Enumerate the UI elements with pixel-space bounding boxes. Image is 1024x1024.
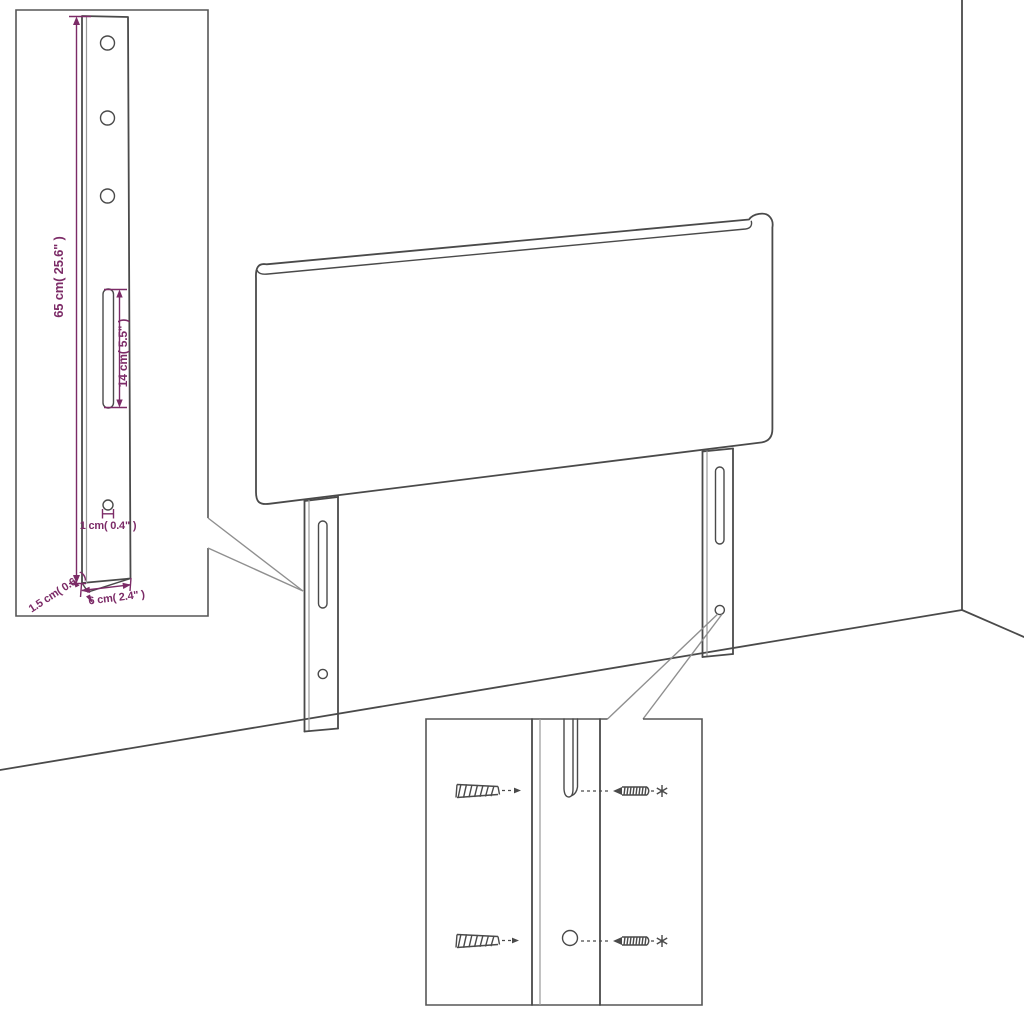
hardware-row-bottom bbox=[456, 934, 667, 948]
room-corner-lines bbox=[0, 0, 1024, 770]
dim-tick-6-right bbox=[130, 578, 131, 591]
floor-line-right bbox=[962, 610, 1024, 637]
dim-arrow-14-bottom bbox=[116, 400, 122, 408]
right-leg-hole bbox=[715, 605, 724, 614]
bracket-drawing bbox=[82, 16, 131, 592]
left-leg bbox=[305, 497, 339, 732]
bracket-hole-low bbox=[101, 189, 115, 203]
left-leg-slot bbox=[319, 521, 328, 608]
screw-head-icon bbox=[657, 935, 667, 947]
bracket-small-hole bbox=[103, 500, 113, 510]
headboard-assembly-diagram: 65 cm( 25.6" ) 14 cm( 5.5" ) 1 cm( 0.4" … bbox=[0, 0, 1024, 1024]
bracket-detail-inset: 65 cm( 25.6" ) 14 cm( 5.5" ) 1 cm( 0.4" … bbox=[16, 10, 303, 616]
bracket-slot bbox=[103, 289, 114, 408]
dimension-foot-thickness: 1.5 cm( 0.6" ) bbox=[27, 569, 93, 615]
wall-plug-icon bbox=[456, 784, 521, 798]
label-slot-length: 14 cm( 5.5" ) bbox=[116, 319, 130, 388]
dimension-total-height: 65 cm( 25.6" ) bbox=[51, 17, 91, 584]
headboard-panel bbox=[256, 214, 773, 504]
bar-hole bbox=[563, 931, 578, 946]
screw-icon bbox=[613, 785, 667, 797]
panel-outline bbox=[256, 214, 773, 504]
mounting-detail-inset bbox=[426, 719, 702, 1005]
leg-front-view bbox=[532, 719, 600, 1005]
diagram-canvas: 65 cm( 25.6" ) 14 cm( 5.5" ) 1 cm( 0.4" … bbox=[0, 0, 1024, 1024]
hardware-row-top bbox=[456, 784, 667, 798]
label-total-height: 65 cm( 25.6" ) bbox=[51, 236, 66, 317]
dim-arrow-65-top bbox=[73, 17, 80, 26]
screw-head-icon bbox=[657, 785, 667, 797]
dim-arrow-14-top bbox=[116, 290, 122, 298]
right-leg bbox=[703, 449, 734, 658]
screw-icon bbox=[613, 935, 667, 947]
callout-line-right bbox=[643, 615, 722, 720]
label-hole-diameter: 1 cm( 0.4" ) bbox=[80, 520, 137, 532]
label-leg-width: 6 cm( 2.4" ) bbox=[88, 589, 146, 608]
bar-slot bbox=[564, 719, 573, 797]
bracket-outline bbox=[82, 16, 131, 583]
right-leg-slot bbox=[716, 467, 725, 544]
left-leg-hole bbox=[318, 669, 327, 678]
bracket-hole-mid bbox=[101, 111, 115, 125]
wall-plug-icon bbox=[456, 934, 519, 948]
dimension-slot-length: 14 cm( 5.5" ) bbox=[104, 290, 130, 408]
dimension-hole-diameter: 1 cm( 0.4" ) bbox=[80, 509, 137, 532]
label-foot-thickness: 1.5 cm( 0.6" ) bbox=[27, 569, 89, 615]
bracket-hole-top bbox=[101, 36, 115, 50]
panel-top-seam-line bbox=[257, 221, 751, 274]
floor-line-left bbox=[0, 610, 962, 770]
